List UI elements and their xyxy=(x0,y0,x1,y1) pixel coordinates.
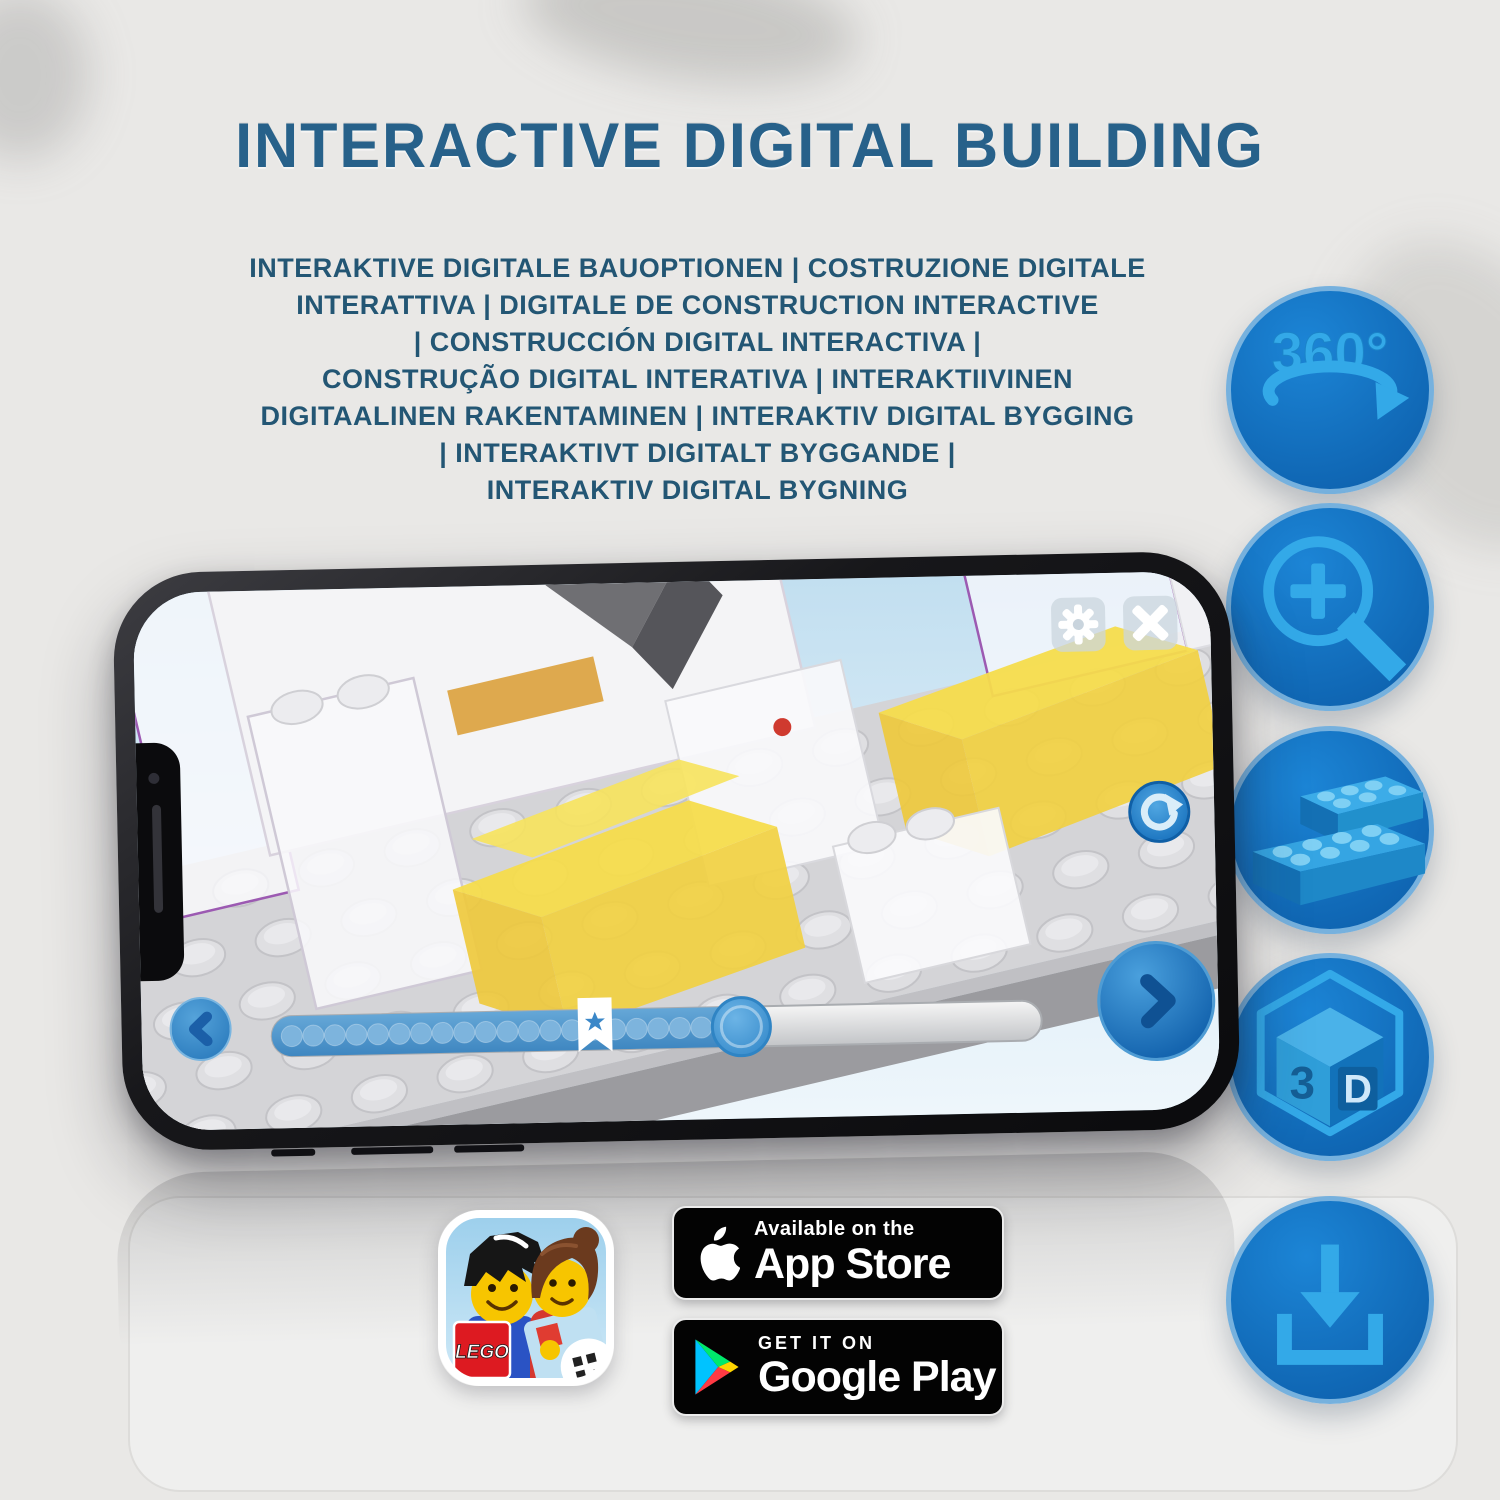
lego-logo-text: LEGO xyxy=(455,1342,509,1363)
subtitle-line: CONSTRUÇÃO DIGITAL INTERATIVA | INTERAKT… xyxy=(120,361,1275,398)
subtitle-line: | CONSTRUCCIÓN DIGITAL INTERACTIVA | xyxy=(120,324,1275,361)
google-play-icon xyxy=(690,1337,744,1397)
apple-icon xyxy=(690,1223,740,1283)
3d-view-icon: 3 D xyxy=(1231,958,1429,1156)
subtitle-line: DIGITAALINEN RAKENTAMINEN | INTERAKTIV D… xyxy=(120,398,1275,435)
phone-notch xyxy=(134,742,185,981)
brick-steps-icon xyxy=(1231,731,1429,929)
feature-3d-view: 3 D xyxy=(1226,953,1434,1161)
3d-label-3: 3 xyxy=(1290,1058,1315,1109)
settings-button[interactable] xyxy=(1051,597,1106,652)
step-progress-slider[interactable] xyxy=(251,974,1063,1081)
previous-step-button[interactable] xyxy=(169,996,232,1061)
chevron-right-icon xyxy=(1099,943,1213,1059)
google-play-line1: GET IT ON xyxy=(758,1334,996,1353)
subtitle-line: INTERAKTIVE DIGITALE BAUOPTIONEN | COSTR… xyxy=(120,250,1275,287)
multilingual-subtitle: INTERAKTIVE DIGITALE BAUOPTIONEN | COSTR… xyxy=(120,250,1275,509)
feature-zoom xyxy=(1226,503,1434,711)
3d-label-d: D xyxy=(1343,1068,1372,1112)
lego-app-icon[interactable]: LEGO xyxy=(438,1210,614,1386)
rotate-icon xyxy=(1131,783,1188,840)
port-slot xyxy=(454,1144,524,1152)
rotate-view-button[interactable] xyxy=(1128,780,1191,843)
feature-download xyxy=(1226,1196,1434,1404)
google-play-line2: Google Play xyxy=(758,1355,996,1400)
page-title: INTERACTIVE DIGITAL BUILDING xyxy=(23,110,1478,182)
feature-360-rotation: 360° xyxy=(1226,286,1434,494)
phone-mockup xyxy=(112,550,1241,1151)
camera-icon xyxy=(148,773,159,784)
download-icon xyxy=(1231,1201,1429,1399)
google-play-badge[interactable]: GET IT ON Google Play xyxy=(672,1318,1004,1416)
app-store-line2: App Store xyxy=(754,1242,950,1287)
360-rotation-icon: 360° xyxy=(1231,291,1429,489)
subtitle-line: | INTERAKTIVT DIGITALT BYGGANDE | xyxy=(120,435,1275,472)
app-store-badge[interactable]: Available on the App Store xyxy=(672,1206,1004,1300)
chevron-left-icon xyxy=(171,998,230,1059)
marble-streak xyxy=(513,0,866,103)
next-step-button[interactable] xyxy=(1096,940,1216,1062)
app-store-line1: Available on the xyxy=(754,1219,950,1240)
page-background: INTERACTIVE DIGITAL BUILDING INTERAKTIVE… xyxy=(0,0,1500,1500)
phone-screen xyxy=(132,571,1220,1131)
lego-app-icon-art: LEGO xyxy=(438,1210,614,1386)
subtitle-line: INTERATTIVA | DIGITALE DE CONSTRUCTION I… xyxy=(120,287,1275,324)
close-icon xyxy=(1123,595,1178,650)
zoom-in-icon xyxy=(1231,508,1429,706)
feature-brick-steps xyxy=(1226,726,1434,934)
speaker-slot xyxy=(152,805,163,913)
subtitle-line: INTERAKTIV DIGITAL BYGNING xyxy=(120,472,1275,509)
close-button[interactable] xyxy=(1123,595,1178,650)
port-slot xyxy=(271,1149,315,1157)
gear-icon xyxy=(1051,597,1106,652)
